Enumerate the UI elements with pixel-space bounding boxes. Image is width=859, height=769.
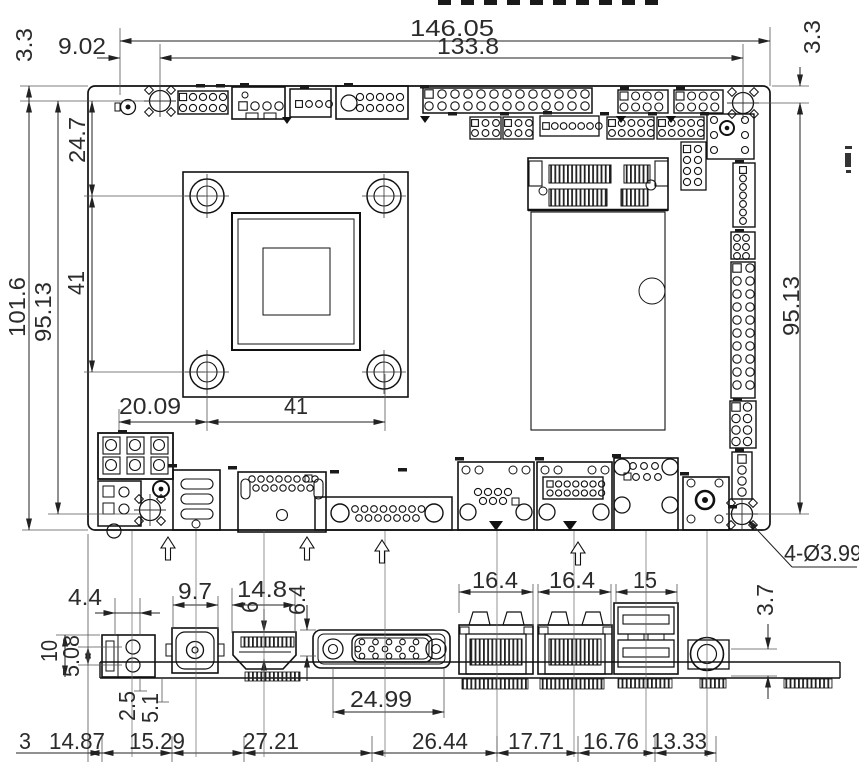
dim-audio-height: 3.7 xyxy=(752,584,778,616)
board-outline xyxy=(88,86,770,530)
pin-header xyxy=(503,117,533,139)
dc-jack-rear xyxy=(166,628,224,673)
dim-board-height: 101.6 xyxy=(4,277,30,337)
dim-power-width: 4.4 xyxy=(68,584,102,610)
pin-header xyxy=(681,142,706,190)
audio-jack-footprint xyxy=(683,477,729,530)
dim-vga-height: 6.4 xyxy=(284,585,310,615)
dim-cpu-hole-top: 24.7 xyxy=(64,117,90,163)
dim-chain-1: 14.87 xyxy=(49,728,105,754)
dim-hdmi-height: 6 xyxy=(237,601,263,613)
dim-chain-6: 16.76 xyxy=(583,728,639,754)
pin1-mark xyxy=(242,92,248,98)
lan2-connector-rear xyxy=(538,612,612,674)
pcb-dimension-drawing: 146.05 133.8 9.02 3.3 3.3 101.6 95.13 24… xyxy=(0,0,859,769)
power-connector-rear xyxy=(102,635,155,677)
lan1-connector-rear xyxy=(459,612,533,674)
pin-header-2x13 xyxy=(423,88,592,113)
dim-lan1-width: 16.4 xyxy=(472,567,518,593)
dim-chain-0: 3 xyxy=(19,728,31,754)
pcb-dimension-drawing-page: 146.05 133.8 9.02 3.3 3.3 101.6 95.13 24… xyxy=(0,0,859,769)
dim-hole-span-y-left: 95.13 xyxy=(30,282,56,342)
dim-chain-5: 17.71 xyxy=(508,728,564,754)
solder-tab xyxy=(246,113,258,119)
dim-chain-7: 13.33 xyxy=(651,728,707,754)
cpu-heatsink-plate xyxy=(183,172,408,397)
dim-cpu-pitch-vertical: 41 xyxy=(63,271,89,295)
hdmi-connector-rear xyxy=(233,632,300,681)
mini-pcie-card-outline xyxy=(531,212,665,430)
rear-view xyxy=(100,603,840,689)
pin-header xyxy=(732,452,752,499)
pin-header xyxy=(470,117,501,139)
audio-jack-rear xyxy=(688,638,729,671)
pin-header xyxy=(674,90,723,113)
dim-hole-span-x: 133.8 xyxy=(437,33,499,59)
dim-chain-3: 27.21 xyxy=(243,728,299,754)
dim-cpu-pitch-horizontal: 41 xyxy=(284,393,308,419)
dim-hdmi-width: 14.8 xyxy=(237,576,287,602)
coax-connector xyxy=(115,100,136,115)
dc-jack-footprint xyxy=(173,470,220,530)
pin-header xyxy=(618,90,668,113)
dim-usb-width: 15 xyxy=(633,567,657,593)
extension-lines xyxy=(20,27,809,718)
dim-hole-offset-x: 9.02 xyxy=(58,33,106,59)
clipped-annotation-right xyxy=(845,146,852,173)
bottom-solder-pads xyxy=(462,679,832,689)
dim-corner-offset-left: 3.3 xyxy=(11,28,37,62)
top-view xyxy=(88,86,770,538)
dim-pad-offset-2: 5.1 xyxy=(137,693,163,723)
vga-footprint xyxy=(315,497,452,530)
dim-lan2-width: 16.4 xyxy=(549,567,595,593)
dim-dc-width: 9.7 xyxy=(178,578,212,604)
dim-hole-span-y-right: 95.13 xyxy=(778,276,804,336)
fan-connector xyxy=(336,86,408,119)
dim-vga-screw-span: 24.99 xyxy=(350,686,412,712)
lan1-footprint xyxy=(458,462,534,530)
dim-cpu-offset-x: 20.09 xyxy=(119,393,181,419)
dim-power-pin-pitch: 5.08 xyxy=(58,635,84,677)
dim-chain-4: 26.44 xyxy=(412,728,468,754)
mini-pcie-slot xyxy=(528,158,668,430)
dim-chain-2: 15.29 xyxy=(129,728,185,754)
connector-hole xyxy=(341,95,357,111)
note-mounting-holes: 4-Ø3.99 xyxy=(784,540,859,566)
dim-corner-offset-right: 3.3 xyxy=(799,20,825,54)
solder-tab xyxy=(264,113,276,119)
